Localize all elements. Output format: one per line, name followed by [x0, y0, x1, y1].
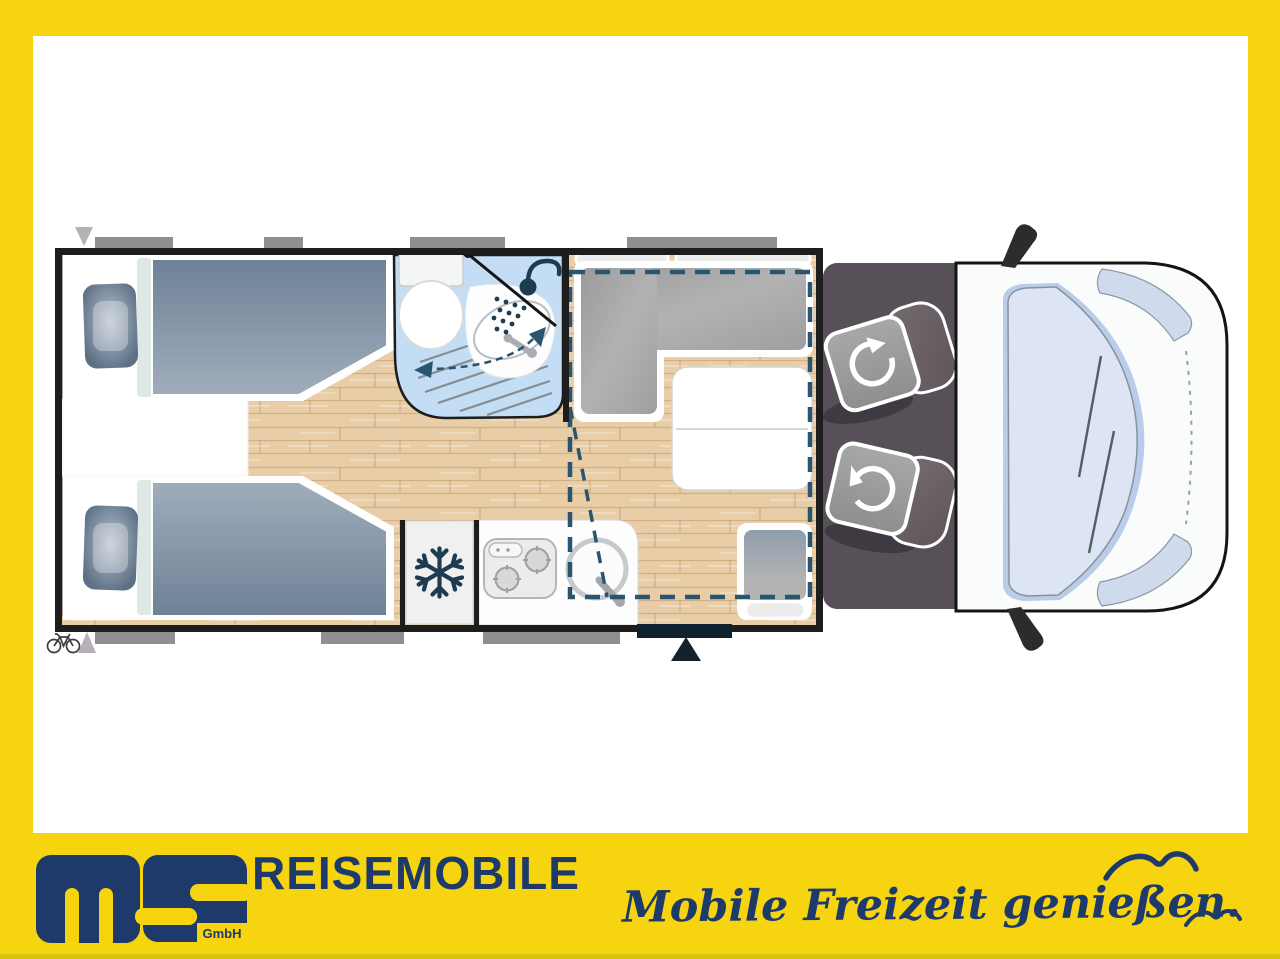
hob [484, 539, 556, 598]
window-marker [321, 632, 404, 644]
kitchen-sink [568, 540, 626, 598]
brand-wordmark: REISEMOBILE [252, 850, 580, 896]
logo-suffix: GmbH [203, 926, 242, 941]
logo-letter-m [36, 855, 140, 948]
entry-arrow-icon [671, 637, 701, 661]
pillow-highlight [93, 523, 128, 573]
side-seat-cushion [744, 530, 806, 600]
side-mirror-top [1001, 224, 1037, 268]
window-marker [483, 632, 620, 644]
pillow-highlight [93, 301, 128, 351]
bed-headboard [137, 480, 152, 615]
seagull-icon [1106, 854, 1196, 878]
bench-cushion [581, 268, 657, 414]
window-marker [95, 632, 175, 644]
bedside-chest [62, 399, 248, 476]
frame-bottom-edge [0, 954, 1280, 959]
logo-letter-s: GmbH [135, 855, 252, 943]
window-marker [264, 237, 303, 248]
window-marker [627, 237, 777, 248]
seat-cushion [825, 441, 921, 537]
seagulls [1095, 845, 1255, 940]
marker-triangle-top [75, 227, 93, 246]
floorplan [40, 215, 1240, 670]
bicycle-icon [48, 634, 80, 653]
marker-triangle-bottom [78, 632, 96, 653]
toilet-bowl [399, 281, 463, 349]
entry-door-marker [637, 624, 732, 638]
floorplan-svg [40, 215, 1240, 670]
side-seat-headrest [746, 602, 805, 618]
window-marker [410, 237, 505, 248]
ms-logo: GmbH [30, 845, 260, 955]
window-marker [95, 237, 173, 248]
side-mirror-bottom [1007, 607, 1043, 651]
seagull-icon [1186, 911, 1240, 925]
cab [820, 224, 1227, 651]
bed-headboard [137, 258, 152, 397]
bathroom [394, 250, 563, 418]
